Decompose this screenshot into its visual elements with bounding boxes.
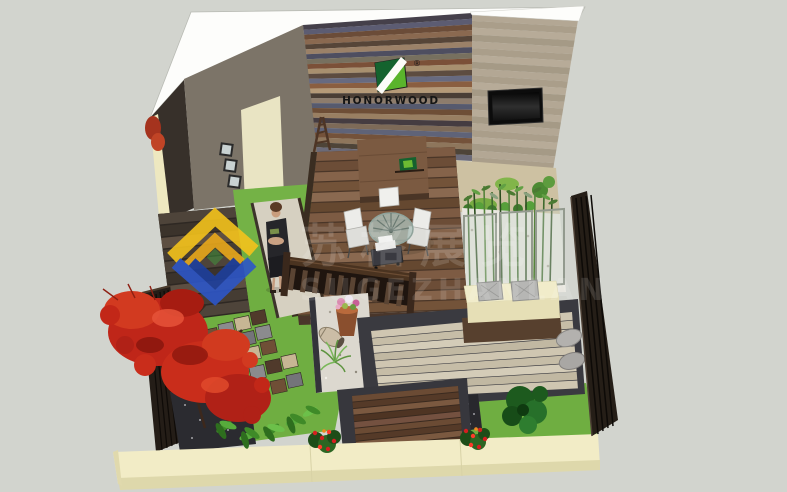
maple-foliage: [116, 336, 134, 354]
maple-shadow: [172, 345, 208, 365]
red-flower: [464, 429, 468, 433]
red-flower: [471, 434, 475, 438]
deck-tile: [286, 372, 303, 388]
red-bush-foliage: [151, 133, 165, 151]
sand-bush: [543, 176, 555, 188]
person-leg: [273, 278, 274, 291]
maple-foliage: [243, 406, 261, 424]
maple-foliage: [202, 329, 250, 361]
picture-frame-mat: [221, 144, 231, 154]
maple-foliage: [100, 305, 120, 325]
wall-tv-screen: [492, 92, 540, 121]
red-flower: [327, 430, 331, 434]
deck-tile: [250, 309, 267, 325]
pebble: [199, 419, 201, 421]
shrub-foliage: [532, 386, 548, 402]
person-hair: [270, 202, 282, 212]
pebble: [191, 437, 193, 439]
person-shoe: [270, 290, 276, 293]
shelf-plaque-mark: [403, 160, 413, 168]
person-crossed-arms: [268, 237, 284, 245]
maple-foliage: [134, 354, 156, 376]
maple-highlight: [201, 377, 229, 393]
red-flower: [313, 431, 317, 435]
deck-tile: [270, 378, 287, 394]
pebble: [325, 377, 327, 379]
watermark-text-cn: 苏格展览: [300, 219, 540, 273]
orange-flower: [474, 427, 478, 431]
red-flower: [469, 443, 473, 447]
deck-tile: [234, 315, 251, 331]
maple-shadow: [136, 337, 164, 353]
red-flower: [478, 428, 482, 432]
maple-highlight: [152, 309, 184, 327]
garden-rendering: ® HONORWOOD: [0, 0, 787, 492]
pebble: [473, 413, 475, 415]
shrub-foliage: [517, 404, 529, 416]
red-flower: [318, 445, 322, 449]
shrub-foliage: [519, 416, 537, 434]
red-flower: [320, 436, 324, 440]
deck-tile: [265, 358, 282, 374]
picture-frame-mat: [229, 176, 239, 186]
rendering-canvas: ® HONORWOOD: [0, 0, 787, 492]
logo-wordmark: HONORWOOD: [342, 95, 440, 107]
chair-back: [379, 187, 399, 207]
registered-mark: ®: [413, 59, 421, 68]
deck-tile: [260, 339, 277, 355]
red-flower: [332, 439, 336, 443]
ladder-rung: [319, 124, 325, 125]
deck-tile: [281, 353, 298, 369]
picture-frame-mat: [225, 160, 235, 170]
red-flower: [483, 437, 487, 441]
person-leg: [280, 276, 281, 290]
watermark-text-latin: SUGEZHANLAN: [300, 273, 609, 308]
red-flower: [326, 447, 330, 451]
pebble: [184, 404, 186, 406]
pebble: [355, 371, 357, 373]
pebble: [227, 429, 229, 431]
maple-foliage: [242, 352, 258, 368]
pebble: [329, 311, 331, 313]
maple-foliage: [254, 377, 270, 393]
orange-flower: [322, 429, 326, 433]
person-scarf: [270, 228, 279, 234]
red-flower: [477, 445, 481, 449]
deck-tile: [255, 324, 272, 340]
